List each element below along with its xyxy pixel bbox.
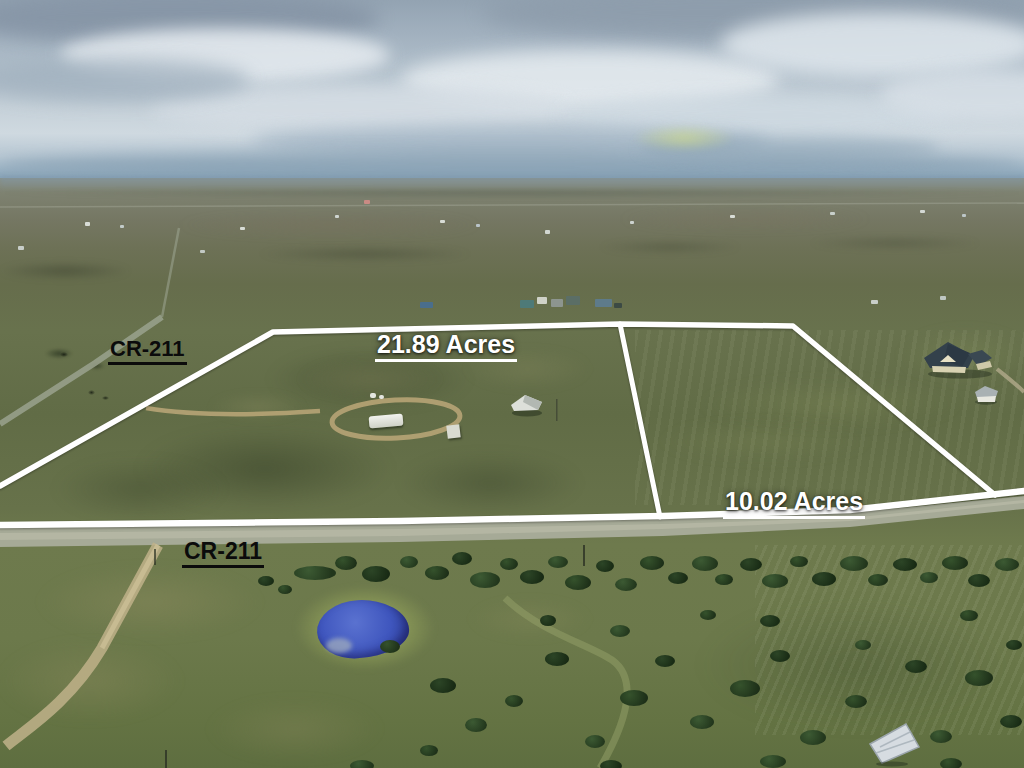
road-label-cr211-left: CR-211 [108, 338, 187, 365]
aerial-photo-scene: 21.89 Acres 10.02 Acres CR-211 CR-211 [0, 0, 1024, 768]
parcel-label-small: 10.02 Acres [723, 489, 865, 519]
property-boundary-overlay [0, 0, 1024, 768]
parcel-label-large: 21.89 Acres [375, 332, 517, 362]
road-label-cr211-bottom: CR-211 [182, 540, 264, 568]
